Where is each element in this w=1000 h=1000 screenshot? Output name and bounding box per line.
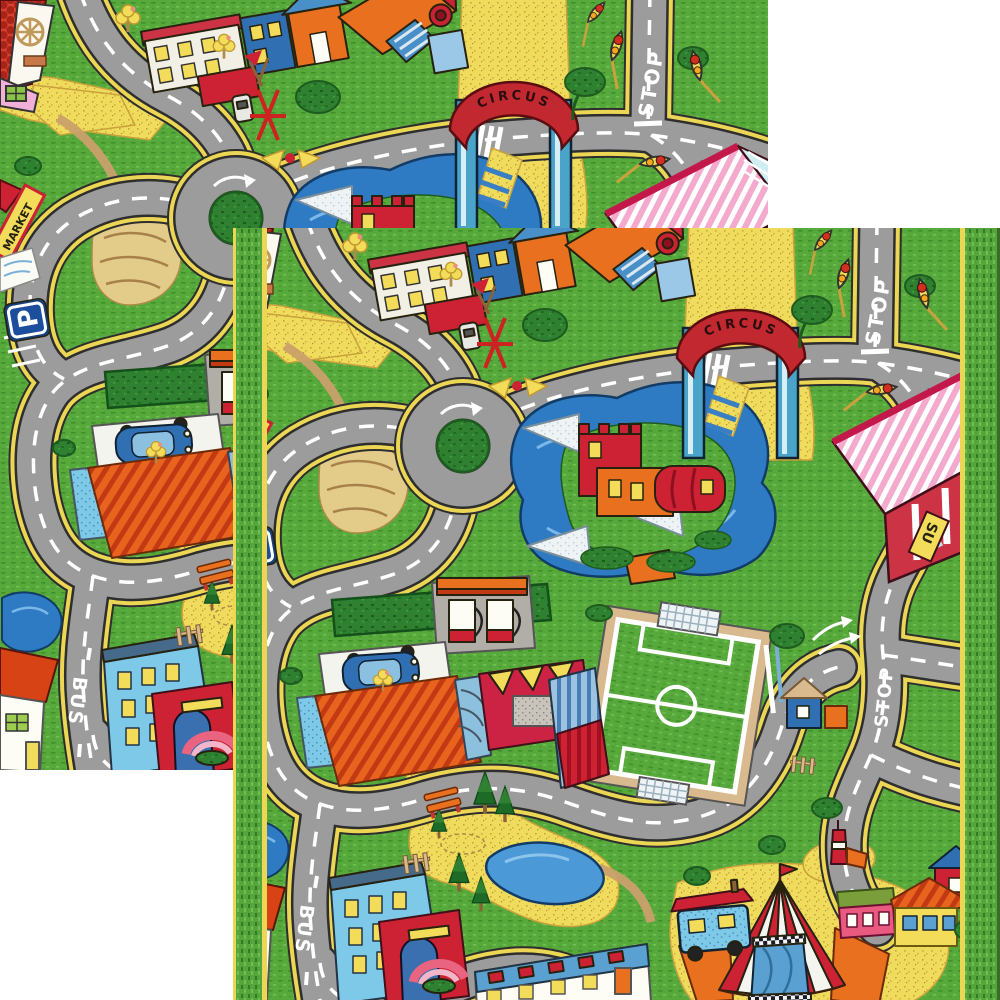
- rug-border-left-trim: [262, 228, 267, 1000]
- rug-border-left: [236, 228, 262, 1000]
- product-photo-canvas: STOP STOP BUS: [0, 0, 1000, 1000]
- rug-border-left-edge: [233, 228, 236, 1000]
- rug-scene: STOP STOP BUS: [0, 0, 1000, 1000]
- rug-front: [217, 188, 1000, 1000]
- rug-border-right: [965, 228, 997, 1000]
- rug-border-right-trim: [960, 228, 965, 1000]
